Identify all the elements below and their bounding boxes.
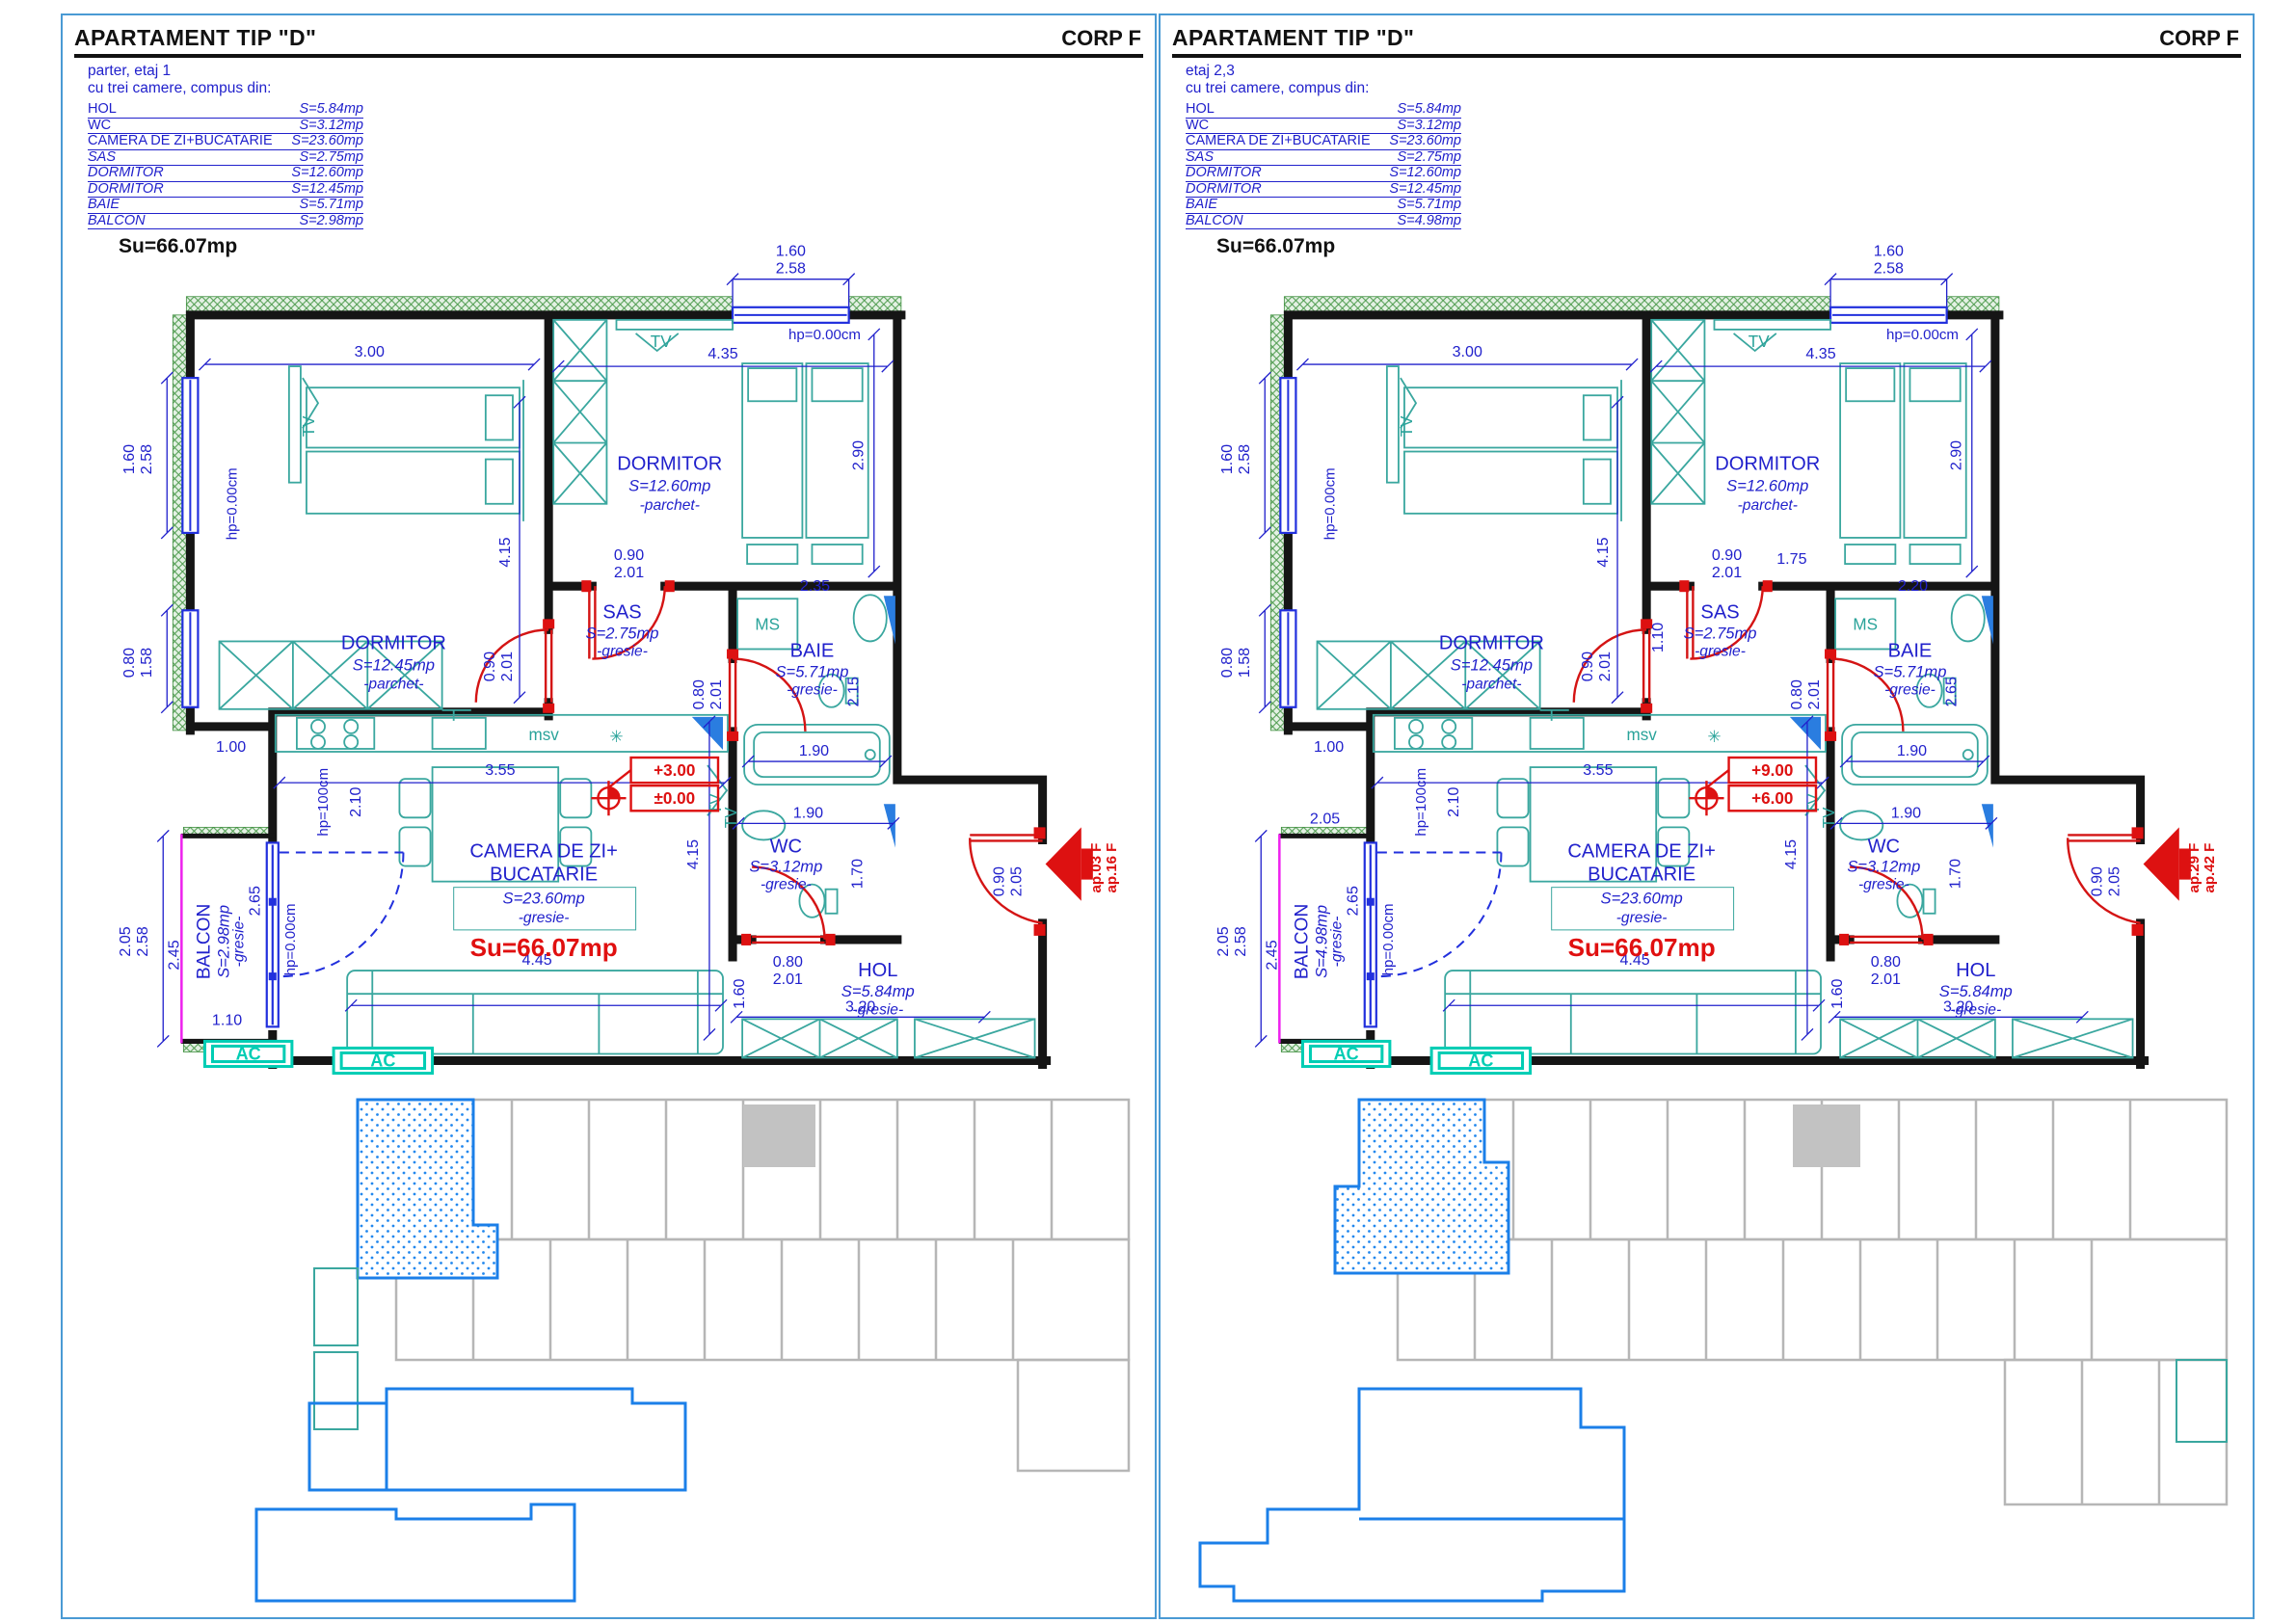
- dim-baie-door-h: 2.01: [1805, 679, 1823, 709]
- ac-label-living: AC: [370, 1051, 395, 1071]
- sheet-panel-left: APARTAMENT TIP "D" CORP F parter, etaj 1…: [61, 13, 1157, 1619]
- room-finish-baie: -gresie-: [1884, 682, 1936, 699]
- room-name: BAIE: [88, 198, 120, 213]
- dim-dormitor2-width: 4.35: [1805, 345, 1835, 362]
- dim-left-window2-w: 0.80: [1218, 648, 1236, 678]
- room-row: BAIES=5.71mp: [88, 198, 363, 214]
- dim-top-window-height: 2.58: [1874, 260, 1904, 278]
- dim-dormitor2-height: 2.90: [1948, 440, 1965, 470]
- room-area-dormitor1: S=12.45mp: [353, 656, 435, 675]
- dim-top-window-width: 1.60: [1874, 243, 1904, 260]
- dim-door1-h: 2.01: [1596, 652, 1614, 681]
- room-area: S=12.45mp: [291, 182, 363, 198]
- room-area-hol: S=5.84mp: [1939, 982, 2013, 1000]
- tv-label-living-2: TV: [1820, 807, 1838, 828]
- room-area: S=12.60mp: [1389, 166, 1461, 181]
- wardrobe-dormitor2: [553, 320, 606, 504]
- hol-wardrobe: [742, 1019, 1034, 1057]
- room-area-baie: S=5.71mp: [775, 663, 848, 681]
- dim-wc-door-h: 2.01: [773, 971, 803, 988]
- hp-label-top: hp=0.00cm: [1886, 327, 1959, 343]
- level-value-bottom: ±0.00: [654, 789, 695, 808]
- hp-label-balcony: hp=0.00cm: [1380, 903, 1397, 975]
- room-finish-wc: -gresie-: [1858, 877, 1909, 893]
- window-sill-symbol-kitchen: [692, 717, 723, 750]
- room-area: S=23.60mp: [1389, 134, 1461, 149]
- apartment-floor-plan: 1.60 2.58 hp=0.00cm 3.00 4.35 2.90 4.15 …: [113, 223, 1125, 1080]
- level-marker: +9.00 +6.00: [1689, 758, 1816, 815]
- sheet-panel-right: APARTAMENT TIP "D" CORP F etaj 2,3 cu tr…: [1159, 13, 2255, 1619]
- room-row: HOLS=5.84mp: [88, 102, 363, 119]
- room-area-hol: S=5.84mp: [841, 982, 915, 1000]
- tv-label-living-2: TV: [722, 807, 740, 828]
- dim-tub: 1.90: [1897, 742, 1927, 759]
- room-name: HOL: [1186, 102, 1215, 118]
- room-label-wc: WC: [770, 836, 802, 857]
- dim-balcony-pair-a: 2.05: [117, 926, 134, 956]
- bed-dormitor1: [1404, 380, 1621, 521]
- room-name: DORMITOR: [1186, 166, 1262, 181]
- dim-left-window2-h: 1.58: [1236, 648, 1253, 678]
- room-finish-baie: -gresie-: [787, 682, 838, 699]
- room-finish-dormitor2: -parchet-: [1738, 497, 1798, 514]
- dim-wc-height: 1.70: [1947, 859, 1964, 889]
- room-area-sas: S=2.75mp: [586, 624, 659, 642]
- apartment-number-1: ap.03 F: [1088, 843, 1105, 893]
- key-plan-outline-blocks: [1200, 1389, 1624, 1601]
- apartment-number-2: ap.16 F: [1104, 843, 1120, 893]
- room-schedule: HOLS=5.84mp WCS=3.12mp CAMERA DE ZI+BUCA…: [1186, 102, 1461, 229]
- room-finish-wc: -gresie-: [761, 877, 812, 893]
- room-row: CAMERA DE ZI+BUCATARIES=23.60mp: [1186, 134, 1461, 150]
- ac-label-living: AC: [1468, 1051, 1493, 1071]
- room-finish-living: -gresie-: [519, 910, 570, 926]
- dim-entry-h: 2.05: [2105, 866, 2122, 896]
- dim-sas-w: 1.75: [1776, 550, 1806, 568]
- dim-top-window-height: 2.58: [776, 260, 806, 278]
- room-area-dormitor2: S=12.60mp: [1726, 477, 1808, 495]
- furniture: [204, 320, 1034, 1074]
- room-area: S=23.60mp: [291, 134, 363, 149]
- room-label-dormitor1: DORMITOR: [341, 632, 446, 653]
- baie-sink: [854, 595, 887, 641]
- room-area: S=5.71mp: [1397, 198, 1461, 213]
- dim-wc-height: 1.70: [849, 859, 867, 889]
- room-area-wc: S=3.12mp: [1847, 858, 1920, 876]
- tv-label-dormitor2: TV: [1749, 333, 1770, 351]
- key-plan-unit-highlight: [358, 1100, 497, 1278]
- room-area-living: S=23.60mp: [503, 890, 585, 908]
- room-label-baie: BAIE: [1888, 641, 1933, 662]
- dim-kitchen-width: 3.55: [1583, 761, 1613, 779]
- dim-living-height: 4.15: [1782, 839, 1800, 869]
- room-label-hol: HOL: [1956, 960, 1995, 981]
- dim-door1-w: 0.90: [1579, 652, 1596, 681]
- room-area: S=3.12mp: [299, 119, 363, 134]
- title-rule: [1172, 54, 2241, 58]
- entry-arrow: ap.03 F ap.16 F: [1046, 827, 1120, 900]
- dim-left-window1-h: 2.58: [1236, 444, 1253, 474]
- room-row: DORMITORS=12.60mp: [1186, 166, 1461, 182]
- wardrobe-dormitor2: [1651, 320, 1704, 504]
- dim-wc-door-w: 0.80: [773, 953, 803, 971]
- dim-dormitor1-width: 3.00: [355, 343, 385, 360]
- dim-baie-door-w: 0.80: [690, 679, 707, 709]
- key-plan-left: [78, 1080, 1138, 1606]
- room-label-wc: WC: [1868, 836, 1900, 857]
- floor-line: parter, etaj 1: [88, 63, 1155, 80]
- dim-dormitor1-height: 4.15: [1594, 537, 1612, 567]
- room-label-dormitor2: DORMITOR: [1715, 454, 1820, 475]
- hp-label-left: hp=0.00cm: [225, 467, 241, 540]
- room-finish-hol: -gresie-: [1950, 1001, 2001, 1018]
- dim-dormitor1-width: 3.00: [1453, 343, 1482, 360]
- dim-balcony-pair-b: 2.58: [134, 926, 151, 956]
- window-sill-symbol-kitchen: [1790, 717, 1821, 750]
- room-area-baie: S=5.71mp: [1873, 663, 1946, 681]
- room-row: WCS=3.12mp: [88, 119, 363, 135]
- key-plan-right: [1176, 1080, 2236, 1606]
- dim-door1-h: 2.01: [498, 652, 516, 681]
- hp-label-balcony: hp=0.00cm: [282, 903, 299, 975]
- room-area: S=5.84mp: [299, 102, 363, 118]
- room-schedule: HOLS=5.84mp WCS=3.12mp CAMERA DE ZI+BUCA…: [88, 102, 363, 229]
- dim-kitchen-height: 2.10: [1445, 787, 1462, 817]
- apartment-type-title: APARTAMENT TIP "D": [1172, 25, 1414, 51]
- level-value-top: +9.00: [1751, 761, 1793, 780]
- room-name: CAMERA DE ZI+BUCATARIE: [1186, 134, 1371, 149]
- header: APARTAMENT TIP "D" CORP F: [63, 15, 1155, 51]
- dim-baie-height: 2.15: [845, 677, 863, 706]
- dim-hol-height: 1.60: [1829, 978, 1846, 1008]
- dim-kitchen-width: 3.55: [485, 761, 515, 779]
- room-row: SASS=2.75mp: [88, 150, 363, 167]
- room-label-hol: HOL: [858, 960, 897, 981]
- dim-hol-height: 1.60: [731, 978, 748, 1008]
- dim-left-window1-w: 1.60: [1218, 444, 1236, 474]
- room-label-balcon: BALCON: [194, 904, 214, 979]
- hob-asterisk-symbol: ✳: [1707, 728, 1721, 746]
- dim-entry-w: 0.90: [2088, 866, 2105, 896]
- hp100-label: hp=100cm: [1413, 768, 1429, 837]
- dim-living-height: 4.15: [684, 839, 702, 869]
- room-label-balcon: BALCON: [1292, 904, 1312, 979]
- dim-ms-width: 2.20: [1898, 577, 1928, 595]
- dim-entry-w: 0.90: [990, 866, 1007, 896]
- dim-dormitor2-width: 4.35: [707, 345, 737, 362]
- room-finish-sas: -gresie-: [1695, 644, 1746, 660]
- compose-line: cu trei camere, compus din:: [88, 80, 1155, 97]
- dim-step: 1.00: [1314, 738, 1344, 756]
- dim-dormitor2-height: 2.90: [850, 440, 868, 470]
- dim-balcony-right: 2.65: [1345, 886, 1362, 916]
- sofa: [347, 971, 723, 1053]
- tv-label-dormitor1: TV: [300, 415, 318, 437]
- floor-line: etaj 2,3: [1186, 63, 2253, 80]
- room-area-sas: S=2.75mp: [1684, 624, 1757, 642]
- room-name: DORMITOR: [1186, 182, 1262, 198]
- ac-label-balcony: AC: [1334, 1045, 1359, 1064]
- floor-plan-slot: 1.60 2.58 hp=0.00cm 3.00 4.35 2.90 4.15 …: [1211, 223, 2223, 1080]
- apartment-type-title: APARTAMENT TIP "D": [74, 25, 316, 51]
- dim-baie-door-w: 0.80: [1788, 679, 1805, 709]
- dim-sas-h: 1.10: [1649, 623, 1667, 652]
- room-area-dormitor1: S=12.45mp: [1451, 656, 1533, 675]
- room-label-dormitor1: DORMITOR: [1439, 632, 1544, 653]
- dim-door2-h: 2.01: [614, 564, 644, 581]
- dim-door1-w: 0.90: [481, 652, 498, 681]
- hob-asterisk-symbol: ✳: [609, 728, 623, 746]
- hol-wardrobe: [1840, 1019, 2132, 1057]
- window-sill-symbol-wc: [1982, 804, 1993, 847]
- room-row: SASS=2.75mp: [1186, 150, 1461, 167]
- key-plan-building: [1359, 1100, 2227, 1504]
- building-corp-label: CORP F: [1061, 26, 1141, 51]
- hp100-label: hp=100cm: [315, 768, 332, 837]
- key-plan-annex-box: [2176, 1360, 2227, 1442]
- title-rule: [74, 54, 1143, 58]
- compose-line: cu trei camere, compus din:: [1186, 80, 2253, 97]
- ms-label: MS: [755, 615, 780, 633]
- dim-wc-width: 1.90: [793, 804, 823, 821]
- room-finish-living: -gresie-: [1616, 910, 1668, 926]
- room-name: DORMITOR: [88, 182, 164, 198]
- dim-ms-width: 2.35: [800, 577, 830, 595]
- dim-balcony-pair-b: 2.58: [1232, 926, 1249, 956]
- room-row: DORMITORS=12.60mp: [88, 166, 363, 182]
- hp-label-top: hp=0.00cm: [788, 327, 861, 343]
- dim-wc-width: 1.90: [1891, 804, 1921, 821]
- dim-top-window-width: 1.60: [776, 243, 806, 260]
- room-finish-balcon: -gresie-: [1329, 917, 1346, 968]
- dim-balcony-top: 2.05: [1310, 810, 1340, 827]
- room-label-living-2: BUCATARIE: [1588, 865, 1695, 886]
- room-area: S=2.75mp: [1397, 150, 1461, 166]
- dim-entry-h: 2.05: [1007, 866, 1025, 896]
- room-finish-hol: -gresie-: [852, 1001, 903, 1018]
- entry-arrow: ap.29 F ap.42 F: [2144, 827, 2218, 900]
- room-area-dormitor2: S=12.60mp: [628, 477, 710, 495]
- dim-wc-door-h: 2.01: [1871, 971, 1901, 988]
- room-name: DORMITOR: [88, 166, 164, 181]
- furniture: [1302, 320, 2132, 1074]
- tv-label-dormitor1: TV: [1398, 415, 1416, 437]
- room-label-sas: SAS: [1700, 601, 1739, 623]
- room-name: WC: [88, 119, 111, 134]
- room-name: WC: [1186, 119, 1209, 134]
- hp-label-left: hp=0.00cm: [1322, 467, 1339, 540]
- room-label-living-2: BUCATARIE: [490, 865, 598, 886]
- ms-label: MS: [1853, 615, 1878, 633]
- dim-baie-door-h: 2.01: [707, 679, 725, 709]
- dim-dormitor1-height: 4.15: [496, 537, 514, 567]
- room-label-dormitor2: DORMITOR: [617, 454, 722, 475]
- room-finish-balcon: -gresie-: [231, 917, 248, 968]
- key-plan-unit-highlight: [1335, 1100, 1508, 1273]
- dim-door2-w: 0.90: [614, 546, 644, 564]
- room-finish-dormitor1: -parchet-: [1461, 677, 1521, 693]
- room-name: CAMERA DE ZI+BUCATARIE: [88, 134, 273, 149]
- header: APARTAMENT TIP "D" CORP F: [1161, 15, 2253, 51]
- apartment-number-2: ap.42 F: [2202, 843, 2218, 893]
- dim-balcony-width: 2.45: [1263, 940, 1280, 970]
- sofa: [1445, 971, 1821, 1053]
- dim-door2-w: 0.90: [1712, 546, 1742, 564]
- tv-label-dormitor2: TV: [651, 333, 672, 351]
- room-area: S=5.84mp: [1397, 102, 1461, 118]
- plan-total-area: Su=66.07mp: [470, 933, 618, 962]
- dim-balcony-pair-a: 2.05: [1215, 926, 1232, 956]
- room-name: SAS: [88, 150, 116, 166]
- dim-wc-door-w: 0.80: [1871, 953, 1901, 971]
- msv-label: msv: [528, 726, 559, 744]
- building-corp-label: CORP F: [2159, 26, 2239, 51]
- ac-label-balcony: AC: [236, 1045, 261, 1064]
- level-marker: +3.00 ±0.00: [591, 758, 718, 815]
- room-finish-sas: -gresie-: [597, 644, 648, 660]
- plan-total-area: Su=66.07mp: [1568, 933, 1716, 962]
- room-row: HOLS=5.84mp: [1186, 102, 1461, 119]
- dim-left-window2-h: 1.58: [138, 648, 155, 678]
- dim-left-window1-w: 1.60: [120, 444, 138, 474]
- room-area-wc: S=3.12mp: [749, 858, 822, 876]
- key-plan-annex-boxes: [314, 1268, 358, 1429]
- room-row: WCS=3.12mp: [1186, 119, 1461, 135]
- room-finish-dormitor1: -parchet-: [363, 677, 423, 693]
- room-name: HOL: [88, 102, 117, 118]
- level-value-top: +3.00: [654, 761, 695, 780]
- room-name: BAIE: [1186, 198, 1217, 213]
- room-row: CAMERA DE ZI+BUCATARIES=23.60mp: [88, 134, 363, 150]
- baie-sink: [1952, 595, 1985, 641]
- apartment-floor-plan: 1.60 2.58 hp=0.00cm 3.00 4.35 2.90 4.15 …: [1211, 223, 2223, 1080]
- dim-kitchen-height: 2.10: [347, 787, 364, 817]
- room-label-sas: SAS: [602, 601, 641, 623]
- dim-door2-h: 2.01: [1712, 564, 1742, 581]
- room-row: DORMITORS=12.45mp: [1186, 182, 1461, 199]
- level-value-bottom: +6.00: [1751, 789, 1793, 808]
- room-area: S=12.60mp: [291, 166, 363, 181]
- room-area-living: S=23.60mp: [1601, 890, 1683, 908]
- dim-left-window1-h: 2.58: [138, 444, 155, 474]
- msv-label: msv: [1626, 726, 1657, 744]
- room-row: BAIES=5.71mp: [1186, 198, 1461, 214]
- room-area: S=12.45mp: [1389, 182, 1461, 198]
- room-label-living-1: CAMERA DE ZI+: [1567, 841, 1715, 863]
- dim-baie-height: 2.65: [1943, 677, 1961, 706]
- room-label-living-1: CAMERA DE ZI+: [469, 841, 617, 863]
- bed-dormitor1: [307, 380, 523, 521]
- dim-left-window2-w: 0.80: [120, 648, 138, 678]
- room-area: S=3.12mp: [1397, 119, 1461, 134]
- floor-plan-slot: 1.60 2.58 hp=0.00cm 3.00 4.35 2.90 4.15 …: [113, 223, 1125, 1080]
- dim-balcony-bottom: 1.10: [212, 1011, 242, 1028]
- dim-tub: 1.90: [799, 742, 829, 759]
- dim-step: 1.00: [216, 738, 246, 756]
- room-row: DORMITORS=12.45mp: [88, 182, 363, 199]
- room-area: S=2.75mp: [299, 150, 363, 166]
- key-plan-outline-blocks: [256, 1389, 685, 1601]
- window-sill-symbol-wc: [884, 804, 895, 847]
- dim-balcony-width: 2.45: [165, 940, 182, 970]
- apartment-number-1: ap.29 F: [2186, 843, 2203, 893]
- window-sill-symbol-baie: [884, 596, 895, 644]
- room-name: SAS: [1186, 150, 1214, 166]
- room-label-baie: BAIE: [790, 641, 835, 662]
- dim-balcony-right: 2.65: [247, 886, 264, 916]
- room-area: S=5.71mp: [299, 198, 363, 213]
- room-finish-dormitor2: -parchet-: [640, 497, 700, 514]
